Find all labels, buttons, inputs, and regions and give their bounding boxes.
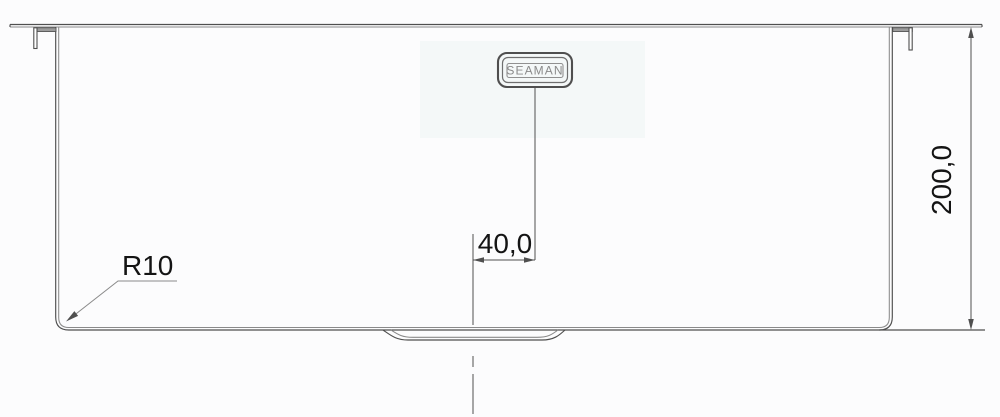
- arrowhead-up-icon: [968, 27, 974, 38]
- bowl-outer-right: [879, 27, 892, 330]
- radius-label: R10: [122, 250, 173, 281]
- mounting-clip-left: [34, 28, 56, 49]
- logo-background-tint: [420, 41, 645, 138]
- arrowhead-down-icon: [968, 319, 974, 330]
- radius-callout: R10: [66, 250, 177, 322]
- technical-drawing-canvas: SEAMAN 40,0 R10 200,0: [0, 0, 1000, 417]
- radius-leader-line: [72, 281, 177, 317]
- dimension-offset-40: 40,0: [473, 228, 535, 325]
- brand-badge: SEAMAN: [498, 53, 572, 87]
- dimension-depth-label: 200,0: [926, 145, 957, 215]
- dimension-offset-label: 40,0: [478, 228, 533, 259]
- sink-top-rim: [10, 25, 982, 28]
- sink-front-view-drawing: SEAMAN 40,0 R10 200,0: [0, 0, 1000, 417]
- radius-arrowhead-icon: [66, 311, 78, 321]
- mounting-clip-right: [893, 28, 913, 50]
- brand-logo-text: SEAMAN: [506, 64, 563, 78]
- drain-recess: [383, 330, 565, 340]
- dimension-depth-200: 200,0: [926, 27, 974, 330]
